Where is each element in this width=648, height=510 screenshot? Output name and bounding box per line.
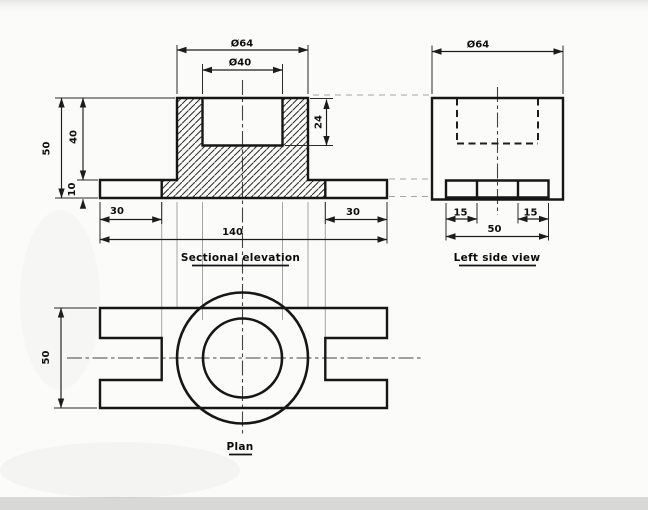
paper-background (0, 0, 648, 510)
scan-noise-smudge (0, 442, 240, 498)
dim-total-height: 50 (42, 142, 53, 156)
view-label-plan: Plan (226, 441, 253, 453)
dim-outer-diameter-elevation: Ø64 (231, 38, 253, 50)
dim-slot-left: 30 (110, 206, 124, 217)
dim-bore-diameter: Ø40 (229, 57, 251, 69)
view-label-left-side: Left side view (454, 252, 541, 264)
dim-boss-height: 40 (69, 130, 80, 144)
dim-slot-offset-left: 15 (454, 208, 468, 219)
dim-base-thickness: 10 (67, 183, 78, 197)
scan-bottom-bar (0, 497, 648, 510)
dim-plan-depth: 50 (41, 351, 52, 365)
engineering-drawing-page: Ø64 Ø40 24 50 40 10 30 30 140 Sectional … (0, 0, 648, 510)
scan-noise-smudge (20, 210, 100, 390)
dim-overall-length: 140 (222, 227, 243, 238)
scan-top-shading (0, 0, 648, 14)
dim-outer-diameter-side: Ø64 (467, 39, 489, 51)
dim-bore-depth: 24 (314, 115, 325, 129)
dim-slot-right: 30 (346, 207, 360, 218)
dim-base-width: 50 (488, 224, 502, 235)
drawing-canvas: Ø64 Ø40 24 50 40 10 30 30 140 Sectional … (0, 0, 648, 510)
view-label-sectional-elevation: Sectional elevation (181, 252, 300, 264)
dim-slot-offset-right: 15 (524, 208, 538, 219)
